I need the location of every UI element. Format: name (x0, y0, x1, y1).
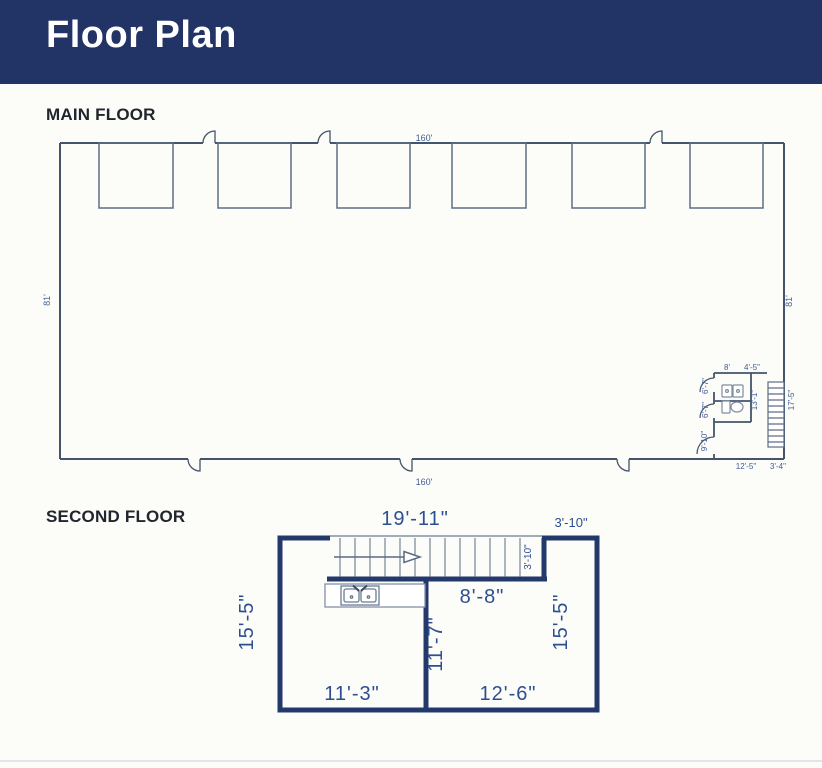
dim-room-depth: 9'-10" (700, 431, 709, 452)
bathroom-fixtures (722, 385, 743, 413)
bay-1 (99, 143, 173, 208)
main-floor-bottom-door-icons (188, 459, 629, 471)
dim-left-height: 81' (42, 294, 52, 306)
stair-direction-arrow-icon (334, 552, 420, 563)
dim-landing-depth: 3'-10" (523, 544, 534, 570)
bay-5 (572, 143, 645, 208)
main-floor-top-door-icons (203, 131, 662, 143)
second-floor-staircase (330, 536, 542, 577)
bay-4 (452, 143, 526, 208)
dim-left-room-width: 11'-3" (324, 683, 379, 705)
kitchen-sink-icon (341, 586, 379, 606)
dim-left-height: 15'-5" (236, 594, 258, 651)
dim-stair-length: 17'-5" (787, 390, 796, 411)
dim-stair-bottom-width: 3'-4" (770, 462, 786, 471)
toilet-icon (722, 401, 743, 413)
dim-stall1-depth: 6'-7" (701, 378, 710, 394)
bay-2 (218, 143, 291, 208)
dim-bottom-width: 160' (416, 477, 433, 487)
page-bottom-edge (0, 760, 822, 762)
main-floor-staircase (768, 382, 784, 447)
dim-stall2-depth: 6'-7" (701, 402, 710, 418)
dim-right-room-width: 12'-6" (480, 683, 537, 705)
dim-bath-bottom-width: 12'-5" (736, 462, 757, 471)
bay-3 (337, 143, 410, 208)
dim-right-height: 81' (784, 295, 794, 307)
bay-6 (690, 143, 763, 208)
main-floor-bays (99, 143, 763, 208)
floor-plan-page: Floor Plan MAIN FLOOR SECOND FLOOR (0, 0, 822, 768)
kitchen-counter (325, 584, 425, 607)
main-floor-dimensions: 160' 160' 81' 81' 8' 4'-5" 6'-7" 6'-7" 9… (42, 133, 796, 487)
dim-right-height: 15'-5" (550, 594, 572, 651)
main-floor-plan (60, 131, 784, 471)
dim-interior-wall-height: 11'-7" (425, 616, 447, 671)
dim-bath-closet-width: 4'-5" (744, 363, 760, 372)
dim-stair-width: 19'-11" (381, 508, 449, 530)
double-sink-icon (722, 385, 743, 397)
dim-hall-width: 8'-8" (460, 586, 505, 608)
main-floor-outer-walls (60, 143, 784, 459)
floor-plan-drawing: 160' 160' 81' 81' 8' 4'-5" 6'-7" 6'-7" 9… (0, 0, 822, 768)
dim-top-width: 160' (416, 133, 433, 143)
dim-bath-length: 13'-1" (750, 390, 759, 411)
dim-landing-width: 3'-10" (554, 515, 588, 530)
dim-bath-width: 8' (724, 363, 730, 372)
